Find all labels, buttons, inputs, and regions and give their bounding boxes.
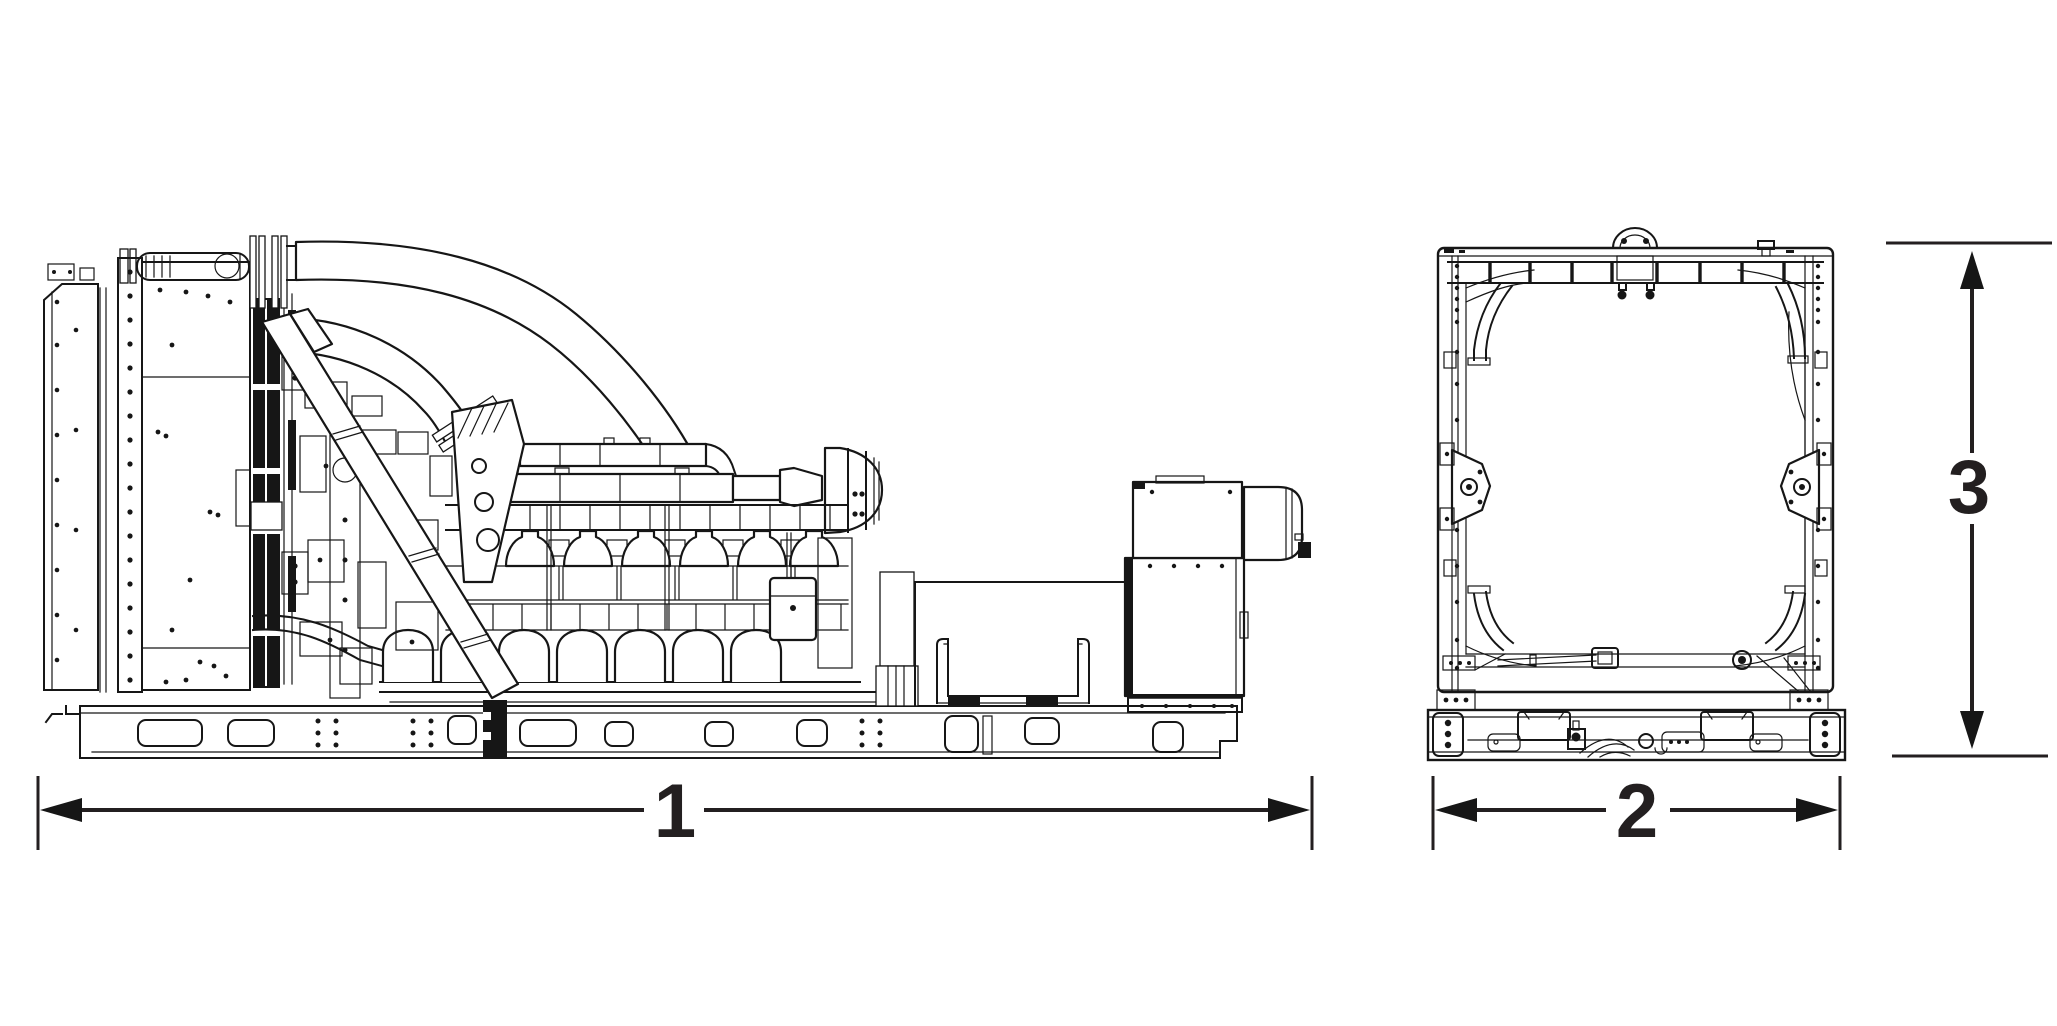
corner-gussets: [1466, 270, 1808, 666]
engine-block: [300, 382, 915, 702]
base-skid: [46, 700, 1237, 758]
dimension-2-arrowhead-left-icon: [1435, 798, 1477, 822]
dimension-1-arrowhead-left-icon: [40, 798, 82, 822]
drawing-canvas: 1 2 3: [0, 0, 2057, 1026]
dimension-3-arrowhead-top-icon: [1960, 251, 1984, 289]
dimension-1-arrowhead-right-icon: [1268, 798, 1310, 822]
dimension-3-arrowhead-bottom-icon: [1960, 711, 1984, 749]
alternator-assembly: [915, 476, 1311, 712]
dimension-1-label: 1: [654, 774, 696, 850]
dimension-2-label: 2: [1616, 774, 1658, 850]
end-base-skid: [1428, 710, 1845, 760]
technical-drawing: [0, 0, 2057, 1026]
bottom-cross-member: [1437, 648, 1828, 710]
end-view-drawing: [1428, 228, 1845, 760]
dimension-2-arrowhead-right-icon: [1796, 798, 1838, 822]
radiator-frame: [1437, 228, 1833, 710]
side-mount-left: [1440, 443, 1490, 530]
flywheel-bell-housing: [825, 448, 882, 533]
rear-engine-support: [876, 572, 918, 706]
frame-side-channels: [1444, 256, 1827, 692]
dimension-3-label: 3: [1948, 450, 1990, 526]
intake-exhaust-duct: [500, 438, 882, 533]
fan-hub-flange: [1613, 228, 1657, 300]
side-mount-right: [1781, 443, 1831, 530]
side-view-drawing: [44, 236, 1311, 758]
